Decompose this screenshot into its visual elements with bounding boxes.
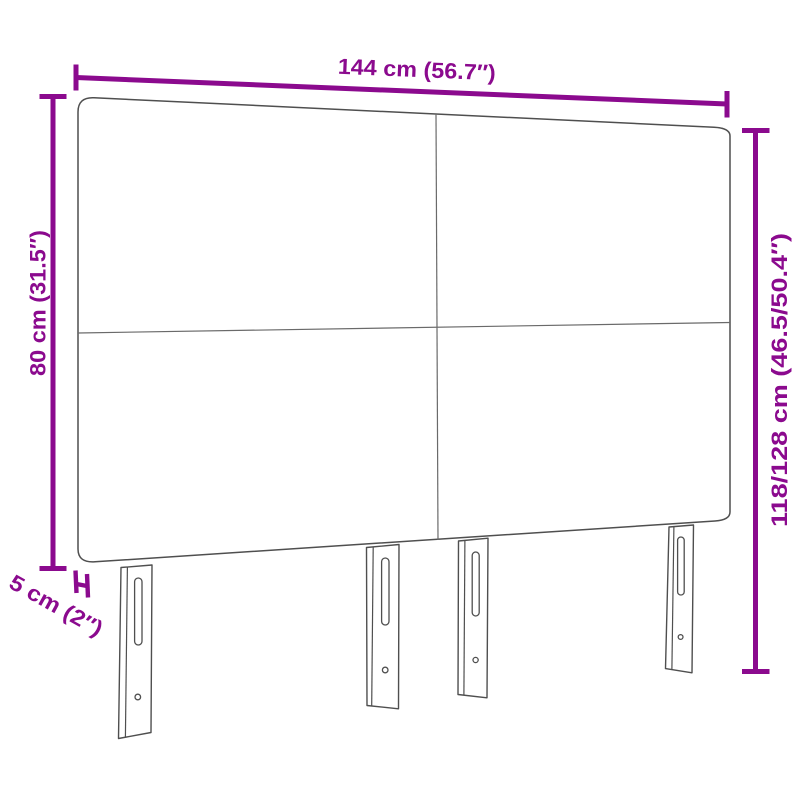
leg-2-adjustment-slot [382, 558, 389, 625]
leg-1-screw-hole [135, 694, 141, 700]
dimension-total-height: 118/128 cm (46.5/50.4″) [742, 131, 792, 672]
headboard-dimension-diagram: 144 cm (56.7″) 80 cm (31.5″) 118/128 cm … [0, 0, 800, 800]
width-dimension-label: 144 cm (56.7″) [337, 54, 496, 86]
panel-height-dimension-label: 80 cm (31.5″) [26, 230, 51, 376]
total-height-dimension-label: 118/128 cm (46.5/50.4″) [767, 233, 792, 527]
headboard-panel [78, 98, 730, 562]
leg-2 [367, 545, 400, 709]
width-dimension-line [76, 78, 727, 105]
leg-4-screw-hole [678, 635, 683, 640]
leg-4-adjustment-slot [678, 537, 685, 595]
headboard-legs [119, 525, 694, 739]
thickness-dimension-line [77, 584, 88, 586]
leg-2-screw-hole [382, 667, 388, 673]
thickness-tick-left [76, 571, 77, 594]
leg-4 [666, 525, 694, 673]
thickness-tick-right [87, 574, 88, 598]
leg-3-screw-hole [473, 657, 478, 662]
leg-3-adjustment-slot [472, 552, 479, 616]
leg-3 [458, 538, 488, 698]
leg-1 [119, 565, 153, 739]
thickness-dimension-label: 5 cm (2″) [5, 570, 107, 642]
dimension-thickness: 5 cm (2″) [5, 570, 107, 642]
diagram-svg: 144 cm (56.7″) 80 cm (31.5″) 118/128 cm … [0, 0, 800, 800]
leg-1-adjustment-slot [135, 578, 142, 645]
dimension-panel-height: 80 cm (31.5″) [26, 97, 67, 569]
